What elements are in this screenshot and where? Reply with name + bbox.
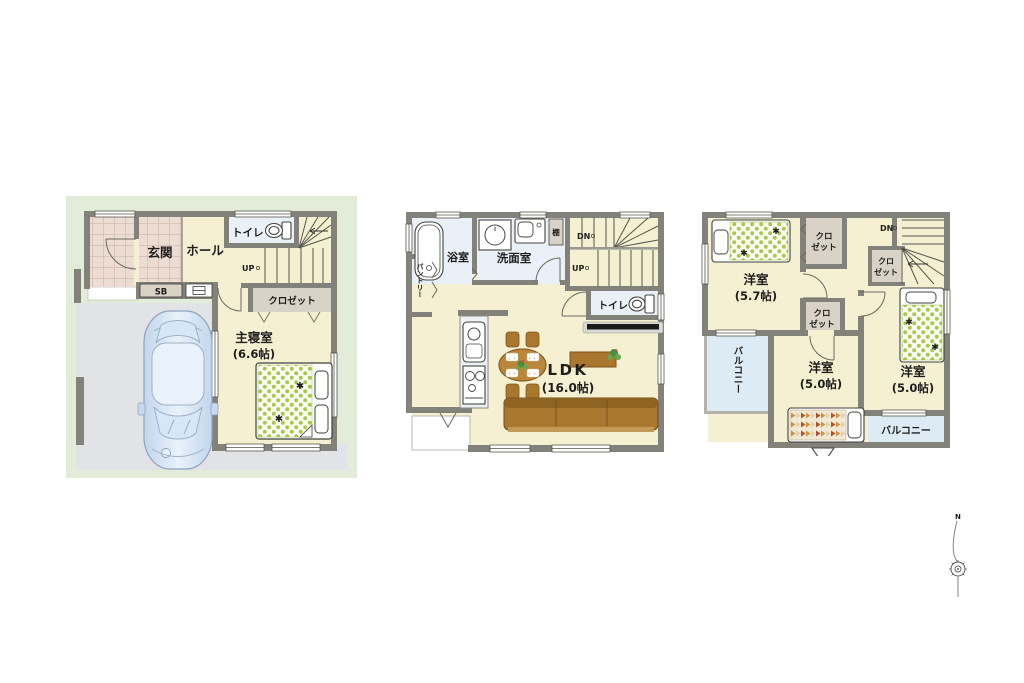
label-room-b: 洋室 [808, 360, 834, 375]
single-bed-icon-room-b [788, 408, 864, 442]
label-washroom: 洗面室 [497, 251, 532, 265]
label-genkan: 玄関 [147, 245, 172, 260]
svg-text:✱: ✱ [905, 318, 913, 328]
svg-text:✱: ✱ [296, 381, 304, 392]
label-closet-top-2: ゼット [811, 242, 837, 253]
label-up-2f: UP [572, 264, 584, 273]
label-ldk: LDK [547, 361, 588, 379]
label-toilet-2f: トイレ [598, 300, 628, 312]
window-swing-mark [812, 448, 834, 456]
label-up-1f: UP [242, 264, 254, 273]
label-closet-stair-2: ゼット [874, 267, 898, 277]
meter-box-icon [186, 284, 212, 297]
compass-north-label: N [955, 513, 961, 521]
svg-text:✱: ✱ [275, 414, 283, 425]
washing-machine-icon [515, 219, 545, 243]
label-balcony-bottom: バルコニー [881, 425, 931, 437]
toilet-icon-2f [629, 295, 654, 313]
label-room-b-size: (5.0帖) [800, 377, 842, 391]
svg-text:✱: ✱ [740, 249, 748, 259]
label-room-c-size: (5.0帖) [892, 381, 934, 395]
label-room-a-size: (5.7帖) [735, 289, 777, 303]
label-closet-stair-1: クロ [878, 256, 894, 266]
compass-needle-icon [949, 521, 967, 597]
label-dn-2f: DN [577, 232, 590, 241]
label-ldk-size: (16.0帖) [542, 380, 595, 395]
double-bed-icon: ✱ ✱ [256, 363, 332, 439]
label-balcony-left: バルコニー [732, 346, 744, 394]
svg-text:✱: ✱ [772, 227, 780, 237]
floor-plan-1f: ✱ ✱ 玄関 ホール トイレ SB クロゼット 主寝室 (6.6帖) UP [60, 191, 360, 483]
label-shoebox: SB [155, 288, 168, 298]
kitchen-counter-icon [460, 316, 488, 408]
label-master-bedroom: 主寝室 [235, 330, 273, 345]
single-bed-icon-room-a: ✱ ✱ [712, 220, 790, 262]
floor-plan-sheet: ✱ ✱ 玄関 ホール トイレ SB クロゼット 主寝室 (6.6帖) UP [0, 0, 1024, 683]
floor-plan-3f: ✱ ✱ ✱ ✱ 洋室 (5.7帖) 洋室 (5.0帖) 洋室 (5.0帖) クロ… [696, 204, 962, 456]
label-shelf: 棚 [552, 227, 560, 237]
label-closet-1f: クロゼット [268, 295, 316, 307]
label-dn-3f: DN [880, 224, 893, 233]
car-icon [138, 311, 218, 469]
label-closet-mid-1: クロ [813, 308, 830, 319]
sofa-icon [504, 398, 658, 432]
svg-text:✱: ✱ [931, 343, 939, 353]
label-closet-mid-2: ゼット [809, 319, 835, 330]
label-pantry: パントリー [416, 262, 424, 298]
single-bed-icon-room-c: ✱ ✱ [900, 288, 944, 362]
label-master-bedroom-size: (6.6帖) [233, 347, 275, 361]
label-room-c: 洋室 [900, 364, 926, 379]
vanity-sink-icon [479, 220, 511, 250]
label-hall: ホール [186, 243, 224, 258]
label-closet-top-1: クロ [815, 231, 832, 242]
label-toilet-1f: トイレ [232, 227, 264, 239]
label-bathroom: 浴室 [447, 250, 469, 264]
label-room-a: 洋室 [743, 272, 769, 287]
tv-icon [583, 322, 663, 333]
toilet-icon [266, 222, 292, 239]
floor-plan-2f: 浴室 洗面室 棚 トイレ パントリー LDK (16.0帖) DN UP [402, 206, 672, 458]
compass-north-indicator: N [938, 503, 978, 603]
